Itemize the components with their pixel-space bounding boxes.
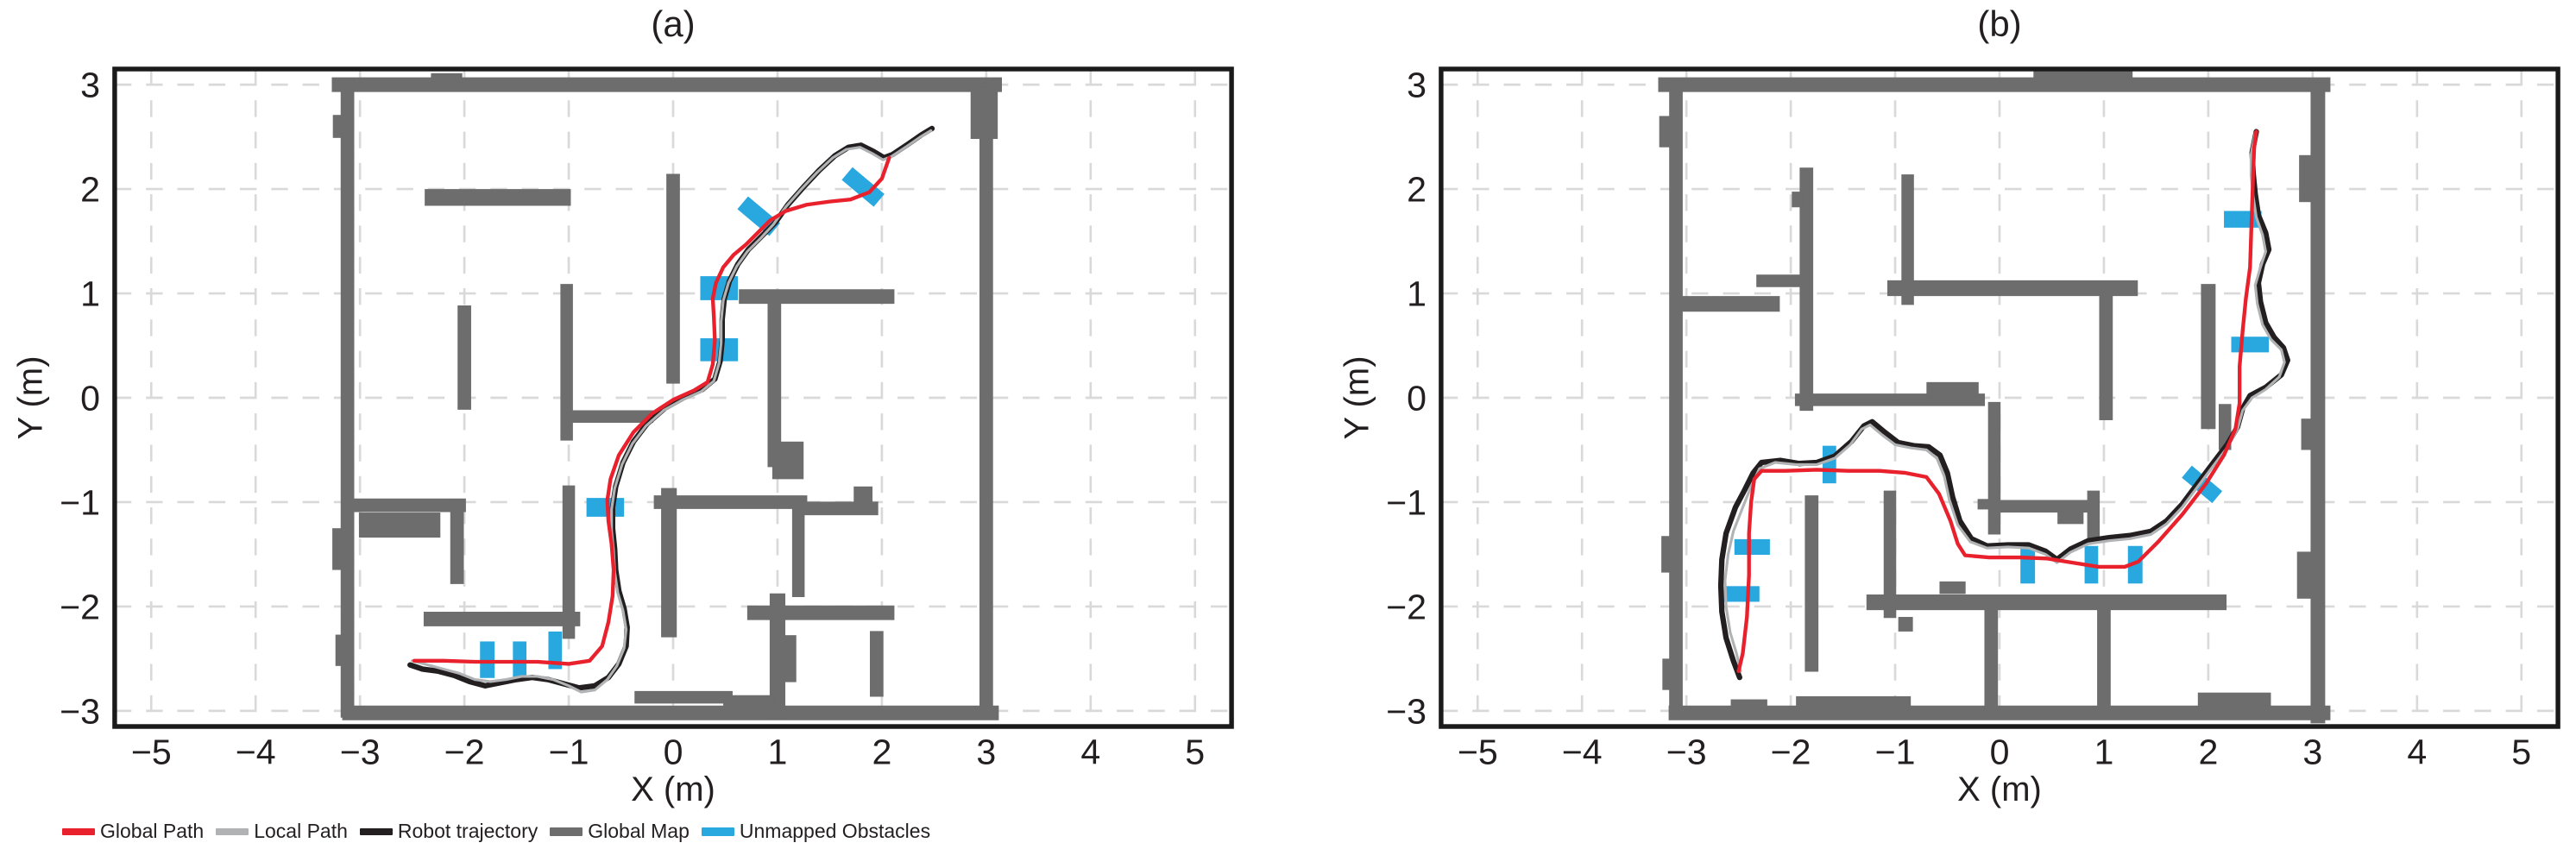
x-tick-label: 3	[2302, 733, 2322, 772]
legend-item-global-path: Global Path	[62, 820, 204, 843]
x-tick-label: 0	[664, 733, 683, 772]
x-tick-label: 5	[2511, 733, 2531, 772]
global-map-block	[332, 528, 348, 569]
global-map-block	[2198, 693, 2271, 707]
global-map-block	[2297, 551, 2314, 598]
x-tick-label: 4	[1080, 733, 1100, 772]
x-tick-label: −5	[131, 733, 172, 772]
x-tick-label: −2	[1771, 733, 1811, 772]
legend-label: Global Path	[100, 820, 204, 843]
global-map-block	[1978, 499, 1991, 509]
y-tick-label: 1	[80, 274, 100, 314]
global-map-block	[1731, 700, 1767, 710]
x-tick-label: 2	[872, 733, 891, 772]
x-tick-label: 0	[1990, 733, 2010, 772]
global-map-block	[1661, 536, 1674, 572]
legend-item-global-map: Global Map	[550, 820, 690, 843]
y-tick-label: −2	[60, 587, 100, 626]
x-tick-label: 4	[2407, 733, 2427, 772]
unmapped-obstacle	[2232, 337, 2270, 352]
unmapped-obstacle	[1724, 586, 1760, 601]
legend-swatch-local-path	[216, 828, 249, 835]
panel-b-plot: −5−4−3−2−10123453210−1−2−3	[1437, 69, 2562, 726]
global-map-block	[772, 442, 803, 480]
unmapped-obstacle	[513, 641, 526, 677]
x-tick-label: −3	[340, 733, 381, 772]
global-map-block	[971, 87, 998, 139]
global-map-block	[1926, 382, 1978, 397]
x-tick-label: 3	[976, 733, 996, 772]
x-tick-label: 1	[768, 733, 788, 772]
global-map-block	[853, 487, 872, 503]
legend-item-robot-trajectory: Robot trajectory	[360, 820, 538, 843]
legend-swatch-unmapped-obstacles	[702, 827, 734, 836]
x-tick-label: 1	[2094, 733, 2114, 772]
global-map-block	[1662, 658, 1675, 689]
panel-b-y-axis-label: Y (m)	[1338, 355, 1377, 439]
legend-swatch-robot-trajectory	[360, 828, 393, 835]
panel-a-title: (a)	[110, 3, 1236, 45]
global-map-block	[1660, 116, 1672, 147]
global-map-block	[1939, 582, 1965, 594]
global-map-block	[784, 635, 797, 682]
x-tick-label: −1	[549, 733, 589, 772]
x-tick-label: −3	[1666, 733, 1707, 772]
global-map-block	[634, 691, 733, 704]
y-tick-label: −1	[60, 482, 100, 522]
x-tick-label: −4	[236, 733, 276, 772]
legend-label: Unmapped Obstacles	[740, 820, 930, 843]
y-tick-label: −1	[1386, 482, 1427, 522]
global-map-block	[2033, 71, 2132, 84]
legend-item-local-path: Local Path	[216, 820, 348, 843]
unmapped-obstacle	[587, 498, 625, 517]
x-tick-label: 2	[2198, 733, 2218, 772]
y-tick-label: 0	[80, 379, 100, 418]
y-tick-label: 2	[1407, 170, 1427, 210]
unmapped-obstacle	[480, 641, 494, 677]
x-tick-label: −1	[1875, 733, 1916, 772]
panel-b-x-axis-label: X (m)	[1437, 771, 2562, 809]
global-map-block	[2299, 155, 2314, 202]
global-map-block	[1796, 696, 1911, 709]
global-map-block	[1899, 617, 1913, 632]
y-tick-label: −3	[1386, 691, 1427, 731]
global-map-block	[2057, 512, 2083, 525]
y-tick-label: 0	[1407, 379, 1427, 418]
panel-b-title: (b)	[1437, 3, 2562, 45]
unmapped-obstacle	[1735, 539, 1770, 555]
y-tick-label: 3	[80, 66, 100, 105]
y-tick-label: 2	[80, 170, 100, 210]
panel-a-x-axis-label: X (m)	[110, 771, 1236, 809]
x-tick-label: −2	[444, 733, 485, 772]
unmapped-obstacle	[2020, 546, 2035, 584]
global-map-block	[2302, 418, 2315, 450]
panel-a-y-axis-label: Y (m)	[12, 355, 51, 439]
figure: (a) (b) −5−4−3−2−10123453210−1−2−3 −5−4−…	[0, 0, 2576, 868]
legend-label: Robot trajectory	[398, 820, 538, 843]
panel-a-plot: −5−4−3−2−10123453210−1−2−3	[110, 69, 1236, 726]
legend: Global PathLocal PathRobot trajectoryGlo…	[62, 820, 930, 843]
x-tick-label: 5	[1185, 733, 1205, 772]
legend-item-unmapped-obstacles: Unmapped Obstacles	[702, 820, 930, 843]
y-tick-label: 1	[1407, 274, 1427, 314]
global-map-block	[359, 513, 440, 538]
legend-swatch-global-path	[62, 828, 95, 835]
legend-label: Local Path	[254, 820, 348, 843]
y-tick-label: −3	[60, 691, 100, 731]
global-map-block	[333, 115, 348, 138]
legend-swatch-global-map	[550, 827, 583, 836]
x-tick-label: −4	[1562, 733, 1603, 772]
global-map-block	[1792, 192, 1802, 207]
y-tick-label: −2	[1386, 587, 1427, 626]
x-tick-label: −5	[1458, 733, 1498, 772]
global-map-block	[431, 73, 462, 86]
global-map-block	[336, 635, 350, 666]
unmapped-obstacle	[1823, 446, 1836, 484]
y-tick-label: 3	[1407, 66, 1427, 105]
legend-label: Global Map	[588, 820, 690, 843]
